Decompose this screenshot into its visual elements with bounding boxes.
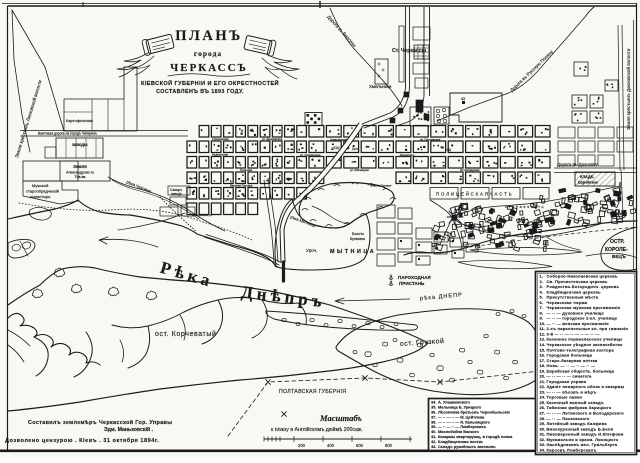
svg-text:ул. Дашковская: ул. Дашковская — [262, 137, 283, 141]
svg-text:заводъ: заводъ — [171, 192, 182, 196]
svg-text:Пивоваренный заводъ И.Юзефови: Пивоваренный заводъ И.Юзефови — [547, 432, 624, 437]
svg-text:Черкасская мужская прогимназія: Черкасская мужская прогимназія — [547, 305, 621, 310]
svg-text:Надпольная: Надпольная — [212, 153, 228, 157]
svg-text:24.: 24. — [540, 395, 546, 400]
svg-text:ост. Корчеватый: ост. Корчеватый — [155, 330, 217, 338]
svg-text:Троицкая: Троицкая — [240, 168, 253, 172]
svg-text:5.: 5. — [540, 295, 543, 300]
svg-text:Дорога въ Вергуны: Дорога въ Вергуны — [326, 14, 357, 48]
svg-text:Почтово-телеграфная контора: Почтово-телеграфная контора — [547, 347, 615, 352]
svg-text:10.: 10. — [540, 321, 546, 326]
svg-text:Составилъ землемѣръ Черкасск: Составилъ землемѣръ Черкасской Гор. Упра… — [28, 419, 172, 426]
svg-text:17.: 17. — [540, 358, 546, 363]
svg-text:ост. Грузкой: ост. Грузкой — [400, 337, 445, 348]
svg-text:Кладбищенская церковь: Кладбищенская церковь — [547, 289, 602, 294]
svg-text:Тов-ва: Тов-ва — [75, 175, 86, 179]
svg-text:КЛАДБ.: КЛАДБ. — [580, 175, 594, 179]
svg-text:Еврейское: Еврейское — [578, 181, 598, 185]
svg-text:заводы: заводы — [72, 142, 88, 147]
svg-text:30.: 30. — [540, 426, 546, 431]
svg-text:Остроградская: Остроградская — [460, 168, 480, 172]
svg-text:Крещатикъ: Крещатикъ — [400, 153, 415, 157]
svg-text:Масштабъ: Масштабъ — [319, 413, 362, 423]
svg-text:Эдм. Маньковскій .: Эдм. Маньковскій . — [104, 426, 154, 433]
svg-text:П О Л И Ц Е Й С К А Я Ч А С: П О Л И Ц Е Й С К А Я Ч А С Т Ь — [436, 192, 512, 197]
svg-text:800: 800 — [385, 443, 393, 448]
svg-text:13.: 13. — [540, 337, 546, 342]
svg-text:Дозволено цензурою . Кіевъ .: Дозволено цензурою . Кіевъ . 31 октября … — [5, 437, 159, 444]
svg-text:— ·· — женская прогимназія: — ·· — женская прогимназія — [547, 321, 610, 326]
svg-text:ПРИСТАНЬ: ПРИСТАНЬ — [399, 281, 425, 286]
svg-text:3.: 3. — [540, 284, 543, 289]
svg-text:Земля крестьянъ Лесковской вол: Земля крестьянъ Лесковской волости — [13, 79, 42, 158]
svg-text:Табачная фабрика Зарицкого: Табачная фабрика Зарицкого — [547, 405, 612, 410]
svg-text:11.: 11. — [540, 326, 545, 331]
svg-text:33.: 33. — [540, 442, 546, 447]
svg-text:города: города — [194, 49, 222, 58]
svg-text:Суворовская: Суворовская — [212, 137, 229, 141]
svg-text:200: 200 — [298, 443, 306, 448]
svg-text:к плану в Англійскомъ дюймѣ 20: к плану в Англійскомъ дюймѣ 200саж. — [271, 426, 363, 433]
svg-text:ПОЛТАВСКАЯ ГУБЕРНІЯ: ПОЛТАВСКАЯ ГУБЕРНІЯ — [279, 389, 346, 395]
svg-text:Черкасское уѣздное казначейств: Черкасское уѣздное казначейство — [547, 342, 624, 347]
svg-text:ул. Митницкая: ул. Митницкая — [350, 168, 369, 172]
svg-text:Днѣпръ: Днѣпръ — [240, 282, 327, 311]
svg-text:15.: 15. — [540, 347, 546, 352]
svg-text:28.: 28. — [540, 416, 546, 421]
svg-text:Ново- — ·· — ·· — ·· —: Ново- — ·· — ·· — ·· — — [547, 363, 596, 368]
svg-text:ЧЕРКАССЪ: ЧЕРКАССЪ — [170, 62, 248, 74]
svg-text:Болото: Болото — [352, 232, 364, 236]
svg-text:Кирсовъ Лемберскихъ: Кирсовъ Лемберскихъ — [547, 447, 597, 452]
svg-text:26.: 26. — [540, 405, 546, 410]
svg-text:2-хъ параллельные кл. при гимн: 2-хъ параллельные кл. при гимназіи — [547, 326, 629, 331]
svg-text:4.: 4. — [540, 289, 543, 294]
svg-text:ОСТР.: ОСТР. — [610, 239, 625, 245]
svg-text:Земля: Земля — [73, 164, 87, 169]
svg-text:Складъ ружейныхъ вагоновъ: Складъ ружейныхъ вагоновъ — [438, 444, 496, 449]
svg-text:8.: 8. — [540, 310, 543, 315]
svg-text:31.: 31. — [540, 432, 546, 437]
svg-text:+СШ: +СШ — [332, 146, 340, 150]
svg-text:23.: 23. — [540, 389, 546, 394]
svg-text:Набережная ул.: Набережная ул. — [192, 213, 213, 217]
svg-text:Уроч.: Уроч. — [306, 248, 317, 253]
svg-text:ВЕЦЪ: ВЕЦЪ — [612, 254, 626, 259]
svg-text:43.: 43. — [431, 444, 436, 449]
svg-text:КІЕВСКОЙ ГУБЕРНІИ И ЕГО ОКРЕСТ: КІЕВСКОЙ ГУБЕРНІИ И ЕГО ОКРЕСТНОСТЕЙ — [141, 79, 279, 87]
svg-text:Старо-базарная аптека: Старо-базарная аптека — [547, 358, 599, 363]
svg-text:34.: 34. — [540, 447, 546, 452]
svg-text:27.: 27. — [540, 411, 546, 416]
svg-text:Соборно-Николаевская церковь: Соборно-Николаевская церковь — [547, 274, 618, 279]
svg-text:43: 43 — [461, 97, 465, 101]
svg-text:+Ш: +Ш — [446, 148, 451, 152]
svg-text:рѣка ДНЕПР: рѣка ДНЕПР — [420, 292, 463, 302]
svg-text:600: 600 — [356, 443, 364, 448]
svg-text:Вантовая дорога на городъ: Вантовая дорога на городъ Чигиринъ — [38, 132, 97, 136]
svg-text:рѣка Мытница: рѣка Мытница — [290, 214, 318, 228]
svg-text:— ·· — Литинского и Володарско: — ·· — Литинского и Володарского — [547, 411, 625, 416]
svg-text:21.: 21. — [540, 379, 546, 384]
svg-text:Земля крестьянъ Дахновской: Земля крестьянъ Дахновской волости — [625, 48, 631, 130]
svg-text:ул. Гоголевская: ул. Гоголевская — [420, 138, 441, 142]
svg-text:14.: 14. — [540, 342, 546, 347]
svg-text:— ·· — ·· — синагога: — ·· — ·· — синагога — [547, 374, 593, 379]
svg-text:Картофляники: Картофляники — [66, 118, 93, 123]
svg-text:с т а р а я ч а с т ь: с т а р а я ч а с т ь — [505, 205, 544, 209]
svg-text:Присутственныя мѣста: Присутственныя мѣста — [547, 295, 599, 300]
svg-text:Казенное первоклассное училище: Казенное первоклассное училище — [547, 337, 624, 342]
svg-text:— ·· — духовное училище: — ·· — духовное училище — [547, 310, 605, 315]
svg-text:20.: 20. — [540, 374, 546, 379]
svg-text:1.: 1. — [540, 274, 543, 279]
svg-text:Дорога въ Русскую Поляну: Дорога въ Русскую Поляну — [509, 49, 554, 93]
svg-text:— ·· — Пасковского: — ·· — Пасковского — [547, 416, 591, 421]
svg-text:монастырь: монастырь — [30, 194, 50, 199]
svg-text:400: 400 — [327, 443, 335, 448]
svg-text:Винокуренный заводъ Б.Беля: Винокуренный заводъ Б.Беля — [547, 426, 614, 431]
svg-text:М Ы Т Н И Ц А: М Ы Т Н И Ц А — [330, 249, 374, 255]
svg-text:Бугаивка: Бугаивка — [350, 237, 365, 241]
svg-text:ПАРОХОДНАЯ: ПАРОХОДНАЯ — [398, 275, 431, 280]
svg-text:2кл: 2кл — [352, 147, 358, 151]
svg-text:Торговые лавки: Торговые лавки — [547, 395, 583, 400]
svg-text:старообрядческій: старообрядческій — [26, 189, 59, 194]
svg-text:Городская управа: Городская управа — [547, 379, 587, 384]
svg-text:Рѣка: Рѣка — [158, 258, 216, 291]
svg-text:СОСТАВЛЕНЪ ВЪ 1893 ГОДУ.: СОСТАВЛЕНЪ ВЪ 1893 ГОДУ. — [156, 89, 244, 95]
svg-text:Верхняя Горовая: Верхняя Горовая — [230, 184, 253, 188]
svg-text:Наслѣдниковъ жел. Грильберга: Наслѣдниковъ жел. Грильберга — [547, 442, 618, 447]
svg-text:КОРОЛЕ-: КОРОЛЕ- — [605, 247, 628, 253]
svg-text:Ст. Черкассы: Ст. Черкассы — [392, 48, 427, 54]
svg-text:ПЛАНЪ: ПЛАНЪ — [175, 28, 242, 44]
svg-text:ул. Смелянская: ул. Смелянская — [300, 153, 321, 157]
svg-text:— ·· — вѣсовъ и мѣръ: — ·· — вѣсовъ и мѣръ — [547, 389, 597, 394]
svg-text:Мужской: Мужской — [32, 183, 48, 188]
svg-text:Александровс-го: Александровс-го — [66, 171, 94, 175]
svg-text:18.: 18. — [540, 363, 546, 368]
svg-text:7.: 7. — [540, 305, 543, 310]
svg-text:Рождество-Богородичн. церковь: Рождество-Богородичн. церковь — [547, 284, 620, 289]
